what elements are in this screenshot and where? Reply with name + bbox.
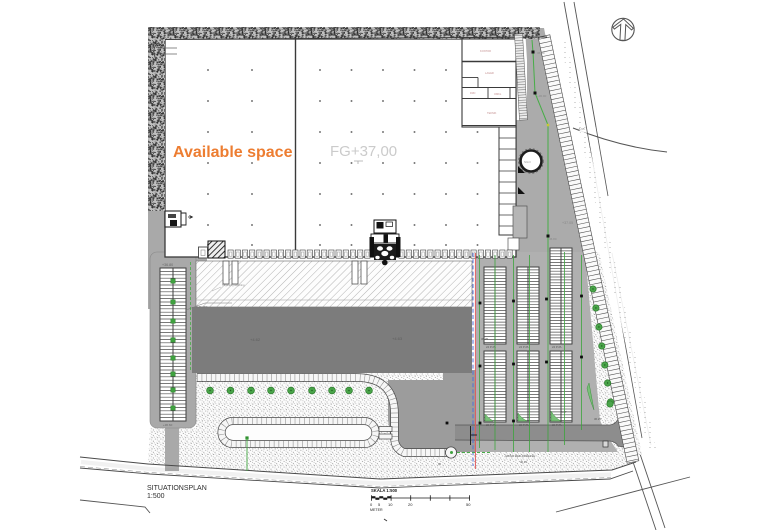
svg-text:36.90: 36.90 [537,51,545,55]
svg-text:4.67: 4.67 [561,410,567,414]
svg-text:22 P-PL: 22 P-PL [552,423,563,427]
svg-text:24 P-PL: 24 P-PL [552,345,563,349]
svg-text:22 P-PL: 22 P-PL [519,423,530,427]
svg-text:36.25: 36.25 [594,417,601,421]
svg-text:50: 50 [466,502,471,507]
svg-text:+37.05: +37.05 [562,221,573,225]
svg-text:36: 36 [438,462,442,466]
svg-text:FG+37,00: FG+37,00 [330,143,397,160]
svg-text:SITUATIONSPLAN: SITUATIONSPLAN [147,485,207,492]
svg-text:+36.80: +36.80 [162,263,173,267]
svg-text:+36.90: +36.90 [537,94,547,98]
svg-text:36.25: 36.25 [481,337,488,341]
svg-text:SILO: SILO [524,160,532,164]
svg-text:20: 20 [408,502,413,507]
svg-text:FRD: FRD [470,91,475,95]
svg-text:TEKNIK: TEKNIK [487,111,497,115]
svg-text:METER: METER [370,508,383,512]
svg-text:+4.63: +4.63 [392,336,403,341]
svg-text:+4.62: +4.62 [250,337,261,342]
svg-text:36.20: 36.20 [520,460,527,464]
svg-text:LAGER: LAGER [485,71,494,75]
svg-text:SKALA 1:500: SKALA 1:500 [371,488,398,493]
svg-text:P-PLATS: P-PLATS [196,305,208,309]
svg-text:10: 10 [388,502,393,507]
svg-text:+6.65: +6.65 [577,127,585,131]
svg-text:1:500: 1:500 [147,493,165,500]
svg-text:GRIND MED RÖRELSE: GRIND MED RÖRELSE [505,454,535,458]
svg-text:KONTOR: KONTOR [480,49,491,53]
svg-text:Available space: Available space [173,144,293,161]
svg-text:+36.60: +36.60 [163,423,173,427]
svg-text:24 P-PL: 24 P-PL [519,345,530,349]
svg-text:36.80: 36.80 [549,237,557,241]
svg-text:OMKL: OMKL [494,92,502,96]
